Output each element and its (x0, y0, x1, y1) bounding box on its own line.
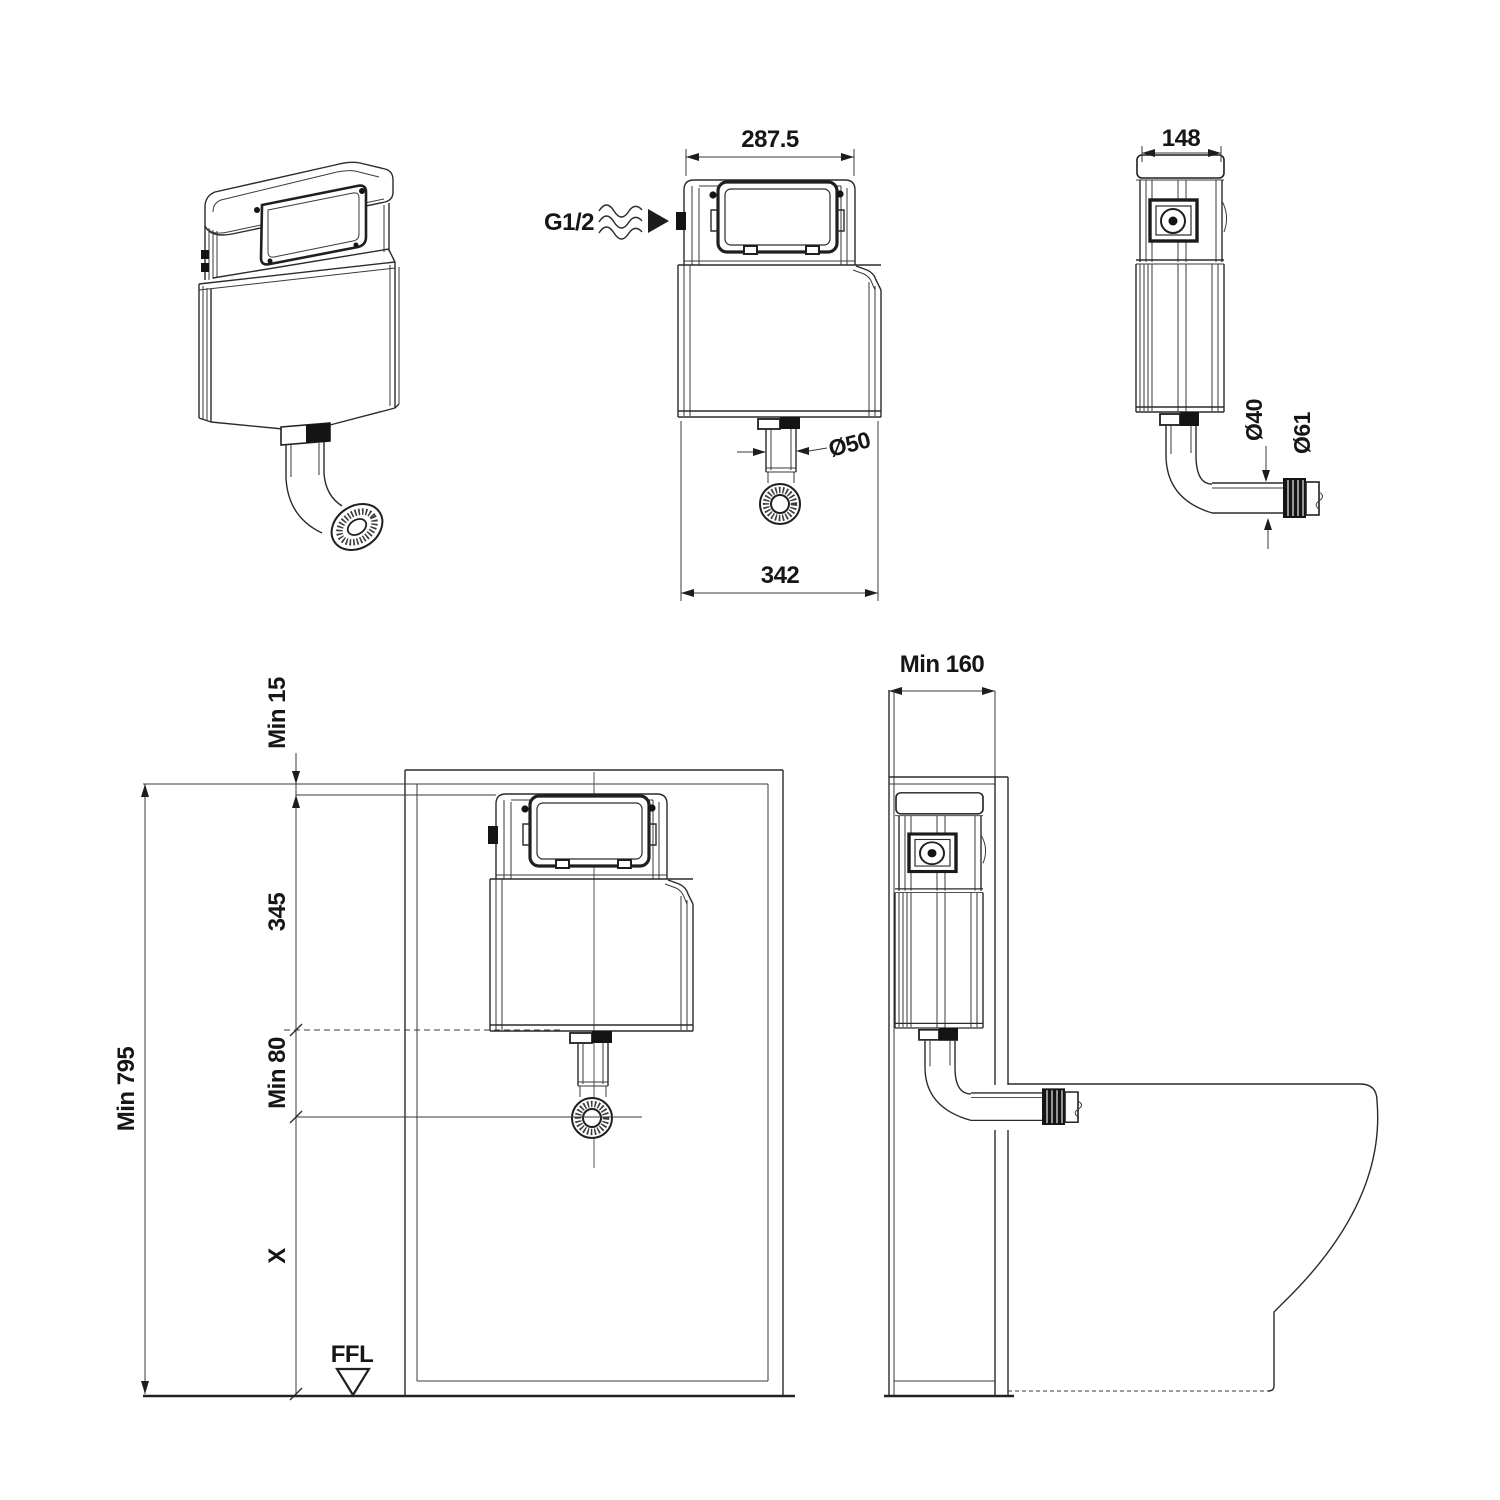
cistern-drawing-svg: 287.5 G1/2 Ø50 342 148 Ø40 (0, 0, 1500, 1500)
dim-depth: 148 (1162, 125, 1201, 152)
dim-pipe-dia: Ø40 (1241, 399, 1267, 441)
dim-width-bottom: 342 (761, 562, 800, 589)
dim-cistern-height: 345 (264, 893, 291, 932)
dim-cavity-depth: Min 160 (900, 651, 985, 678)
label-floor-level: FFL (331, 1341, 373, 1368)
dim-connector-dia: Ø61 (1289, 411, 1315, 454)
view-installation-front: Min 795 Min 15 345 Min 80 X FFL (113, 677, 795, 1400)
water-supply-wave-icon (599, 205, 642, 239)
dim-width-top: 287.5 (741, 126, 799, 153)
inlet-arrow-icon (648, 209, 669, 233)
dim-variable-drop: X (264, 1248, 291, 1264)
label-inlet-thread: G1/2 (544, 209, 594, 236)
view-front-elevation: 287.5 G1/2 Ø50 342 (544, 126, 881, 601)
technical-drawing-page: 287.5 G1/2 Ø50 342 148 Ø40 (0, 0, 1500, 1500)
dim-overall-height: Min 795 (113, 1047, 140, 1132)
view-installation-side: Min 160 (884, 651, 1378, 1396)
dim-outlet-clearance: Min 80 (264, 1037, 291, 1109)
view-side-elevation: 148 Ø40 Ø61 (1136, 125, 1323, 549)
view-3d-perspective (199, 162, 399, 559)
dim-top-clearance: Min 15 (264, 677, 291, 749)
dim-flush-pipe-dia: Ø50 (826, 426, 873, 461)
ffl-datum-icon (337, 1369, 369, 1395)
